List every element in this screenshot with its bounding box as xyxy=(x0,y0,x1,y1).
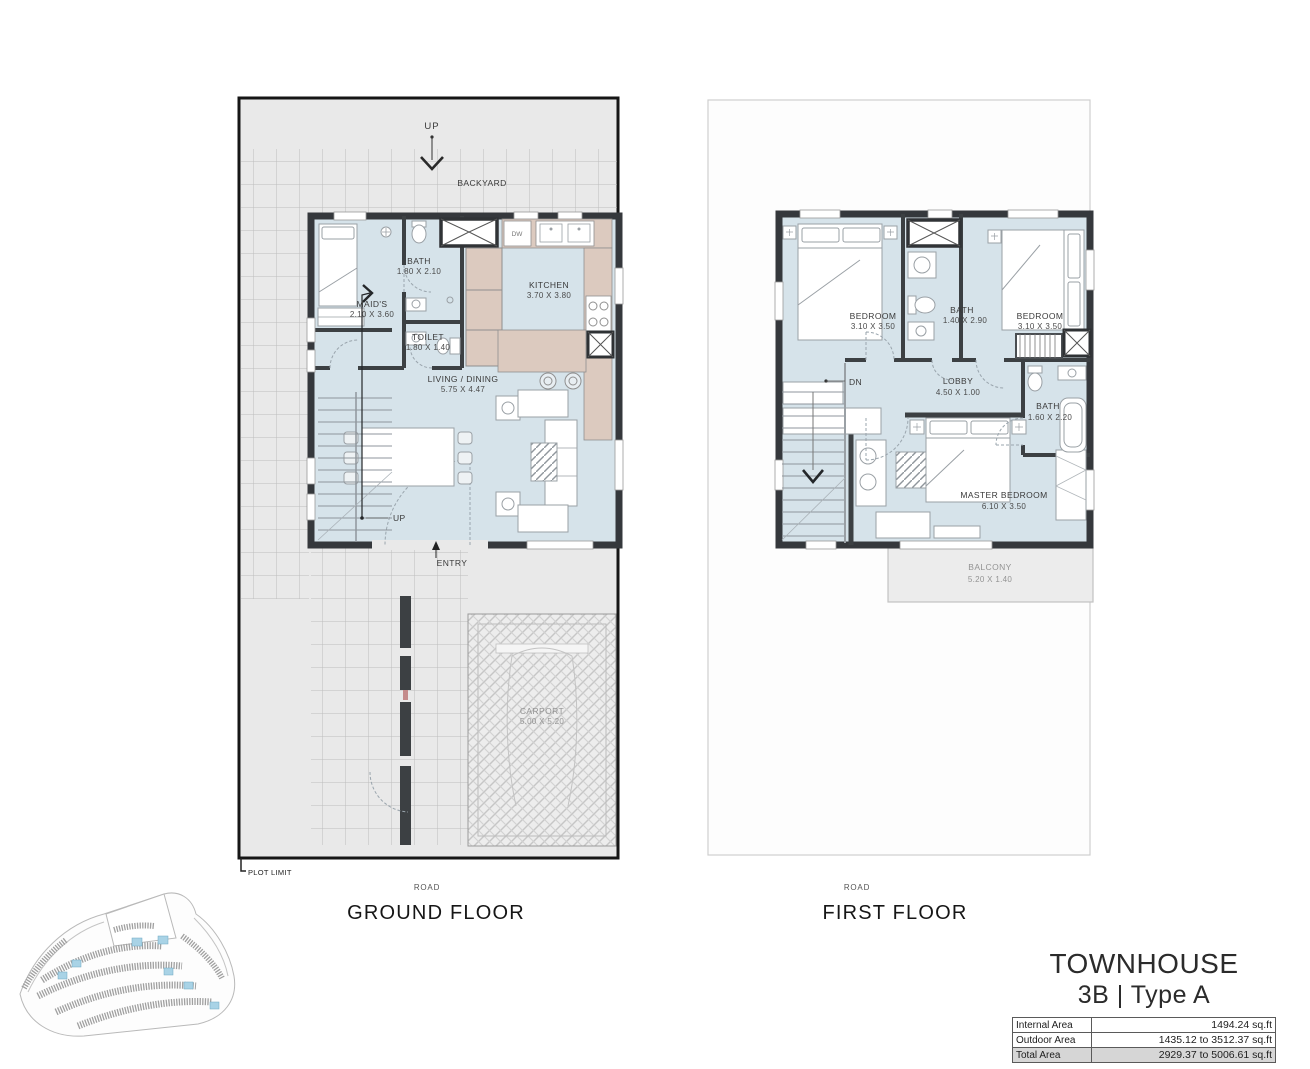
room-label-lobby: LOBBY xyxy=(943,376,973,386)
room-label-kitchen: KITCHEN xyxy=(529,280,569,290)
floorplan-sheet: CARPORT 5.00 X 5.20 xyxy=(0,0,1310,1069)
carport: CARPORT 5.00 X 5.20 xyxy=(468,614,616,846)
loveseat xyxy=(518,390,568,417)
room-dims-bath: 1.80 X 2.10 xyxy=(397,267,441,276)
room-dims-bedroom2: 3.10 X 3.50 xyxy=(1018,322,1062,331)
room-label-carport: CARPORT xyxy=(520,706,564,716)
side-paving xyxy=(241,149,309,599)
stool xyxy=(540,373,556,389)
internal-area-value: 1494.24 sq.ft xyxy=(1092,1018,1276,1033)
ground-road-label: ROAD xyxy=(387,883,467,892)
laundry-closet xyxy=(908,220,960,246)
backyard-label: BACKYARD xyxy=(457,178,506,188)
room-label-bath1: BATH xyxy=(950,305,974,315)
room-dims-master: 6.10 X 3.50 xyxy=(982,502,1026,511)
site-plan-thumbnail xyxy=(20,893,235,1036)
outdoor-area-value: 1435.12 to 3512.37 sq.ft xyxy=(1092,1033,1276,1048)
sofa xyxy=(856,440,886,506)
wardrobe-slatted xyxy=(1016,334,1062,358)
stairs-up-label: UP xyxy=(393,513,406,523)
internal-area-label: Internal Area xyxy=(1013,1018,1092,1033)
title-block: TOWNHOUSE 3B | Type A Internal Area 1494… xyxy=(1010,948,1278,1063)
first-floor-plan: BALCONY 5.20 X 1.40 xyxy=(708,100,1094,855)
total-area-value: 2929.37 to 5006.61 sq.ft xyxy=(1092,1048,1276,1063)
loveseat xyxy=(518,505,568,532)
shaft-box xyxy=(1064,330,1090,356)
plot-limit-marker: PLOT LIMIT xyxy=(241,858,292,877)
table-row-internal: Internal Area 1494.24 sq.ft xyxy=(1013,1018,1276,1033)
dn-label: DN xyxy=(849,377,862,387)
rug xyxy=(531,443,557,481)
room-dims-living: 5.75 X 4.47 xyxy=(441,385,485,394)
room-dims-maids: 2.10 X 3.60 xyxy=(350,310,394,319)
room-label-balcony: BALCONY xyxy=(968,562,1011,572)
room-label-maids: MAID'S xyxy=(357,299,388,309)
room-label-bedroom2: BEDROOM xyxy=(1017,311,1064,321)
stool xyxy=(565,373,581,389)
side-table xyxy=(496,492,520,516)
dishwasher-label: DW xyxy=(512,231,524,238)
table-row-total: Total Area 2929.37 to 5006.61 sq.ft xyxy=(1013,1048,1276,1063)
wardrobe xyxy=(1056,450,1086,520)
room-dims-carport: 5.00 X 5.20 xyxy=(520,717,564,726)
project-title: TOWNHOUSE xyxy=(1010,948,1278,980)
side-table xyxy=(496,396,520,420)
desk xyxy=(876,512,930,538)
kitchen-island xyxy=(498,330,586,372)
room-dims-bath2: 1.60 X 2.20 xyxy=(1028,413,1072,422)
first-floor-title: FIRST FLOOR xyxy=(759,902,1031,925)
first-road-label: ROAD xyxy=(817,883,897,892)
table-row-outdoor: Outdoor Area 1435.12 to 3512.37 sq.ft xyxy=(1013,1033,1276,1048)
total-area-label: Total Area xyxy=(1013,1048,1092,1063)
room-label-toilet: TOILET xyxy=(412,332,444,342)
front-paving xyxy=(311,545,468,845)
room-label-bath: BATH xyxy=(407,256,431,266)
hall-closet xyxy=(441,219,497,246)
room-dims-toilet: 1.80 X 1.40 xyxy=(406,343,450,352)
balcony: BALCONY 5.20 X 1.40 xyxy=(888,548,1093,602)
area-table: Internal Area 1494.24 sq.ft Outdoor Area… xyxy=(1012,1017,1276,1063)
gate-marker xyxy=(403,690,408,700)
room-label-bath2: BATH xyxy=(1036,401,1060,411)
room-label-master: MASTER BEDROOM xyxy=(960,490,1047,500)
outdoor-area-label: Outdoor Area xyxy=(1013,1033,1092,1048)
entry-label: ENTRY xyxy=(437,558,468,568)
room-dims-kitchen: 3.70 X 3.80 xyxy=(527,291,571,300)
unit-type: 3B | Type A xyxy=(1010,980,1278,1010)
rug xyxy=(896,452,926,488)
pantry-storage xyxy=(466,248,502,366)
up-top-label: UP xyxy=(424,121,439,132)
room-dims-bath1: 1.40 X 2.90 xyxy=(943,316,987,325)
room-label-living: LIVING / DINING xyxy=(428,374,499,384)
room-dims-balcony: 5.20 X 1.40 xyxy=(968,575,1012,584)
console xyxy=(934,526,980,538)
ground-floor-plan: CARPORT 5.00 X 5.20 xyxy=(239,98,623,877)
ground-floor-title: GROUND FLOOR xyxy=(300,902,572,925)
room-label-bedroom1: BEDROOM xyxy=(850,311,897,321)
plans-svg: CARPORT 5.00 X 5.20 xyxy=(0,0,1310,1069)
room-dims-lobby: 4.50 X 1.00 xyxy=(936,388,980,397)
kitchen-sink xyxy=(536,221,594,246)
plot-limit-label: PLOT LIMIT xyxy=(248,868,292,877)
entry-opening xyxy=(372,540,488,550)
room-dims-bedroom1: 3.10 X 3.50 xyxy=(851,322,895,331)
service-shaft xyxy=(588,332,613,357)
